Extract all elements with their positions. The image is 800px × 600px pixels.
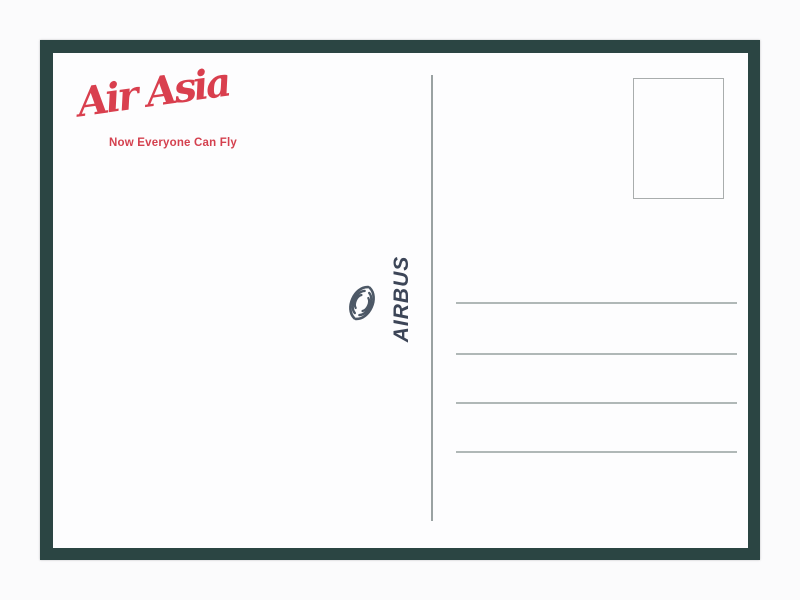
address-line <box>456 353 737 355</box>
stamp-box <box>633 78 724 199</box>
address-line <box>456 451 737 453</box>
postcard-frame: Air Asia Now Everyone Can Fly AIRBU <box>40 40 760 560</box>
postcard-divider-line <box>431 75 433 521</box>
airbus-wordmark: AIRBUS <box>390 256 414 343</box>
postcard-back: Air Asia Now Everyone Can Fly AIRBU <box>53 53 748 548</box>
airasia-logo: Air Asia <box>74 59 231 127</box>
address-line <box>456 402 737 404</box>
address-line <box>456 302 737 304</box>
postcard-scan: Air Asia Now Everyone Can Fly AIRBU <box>0 0 800 600</box>
airasia-brand-block: Air Asia Now Everyone Can Fly <box>53 53 313 173</box>
airasia-tagline: Now Everyone Can Fly <box>109 137 237 149</box>
airbus-globe-swirl-icon <box>342 283 382 323</box>
